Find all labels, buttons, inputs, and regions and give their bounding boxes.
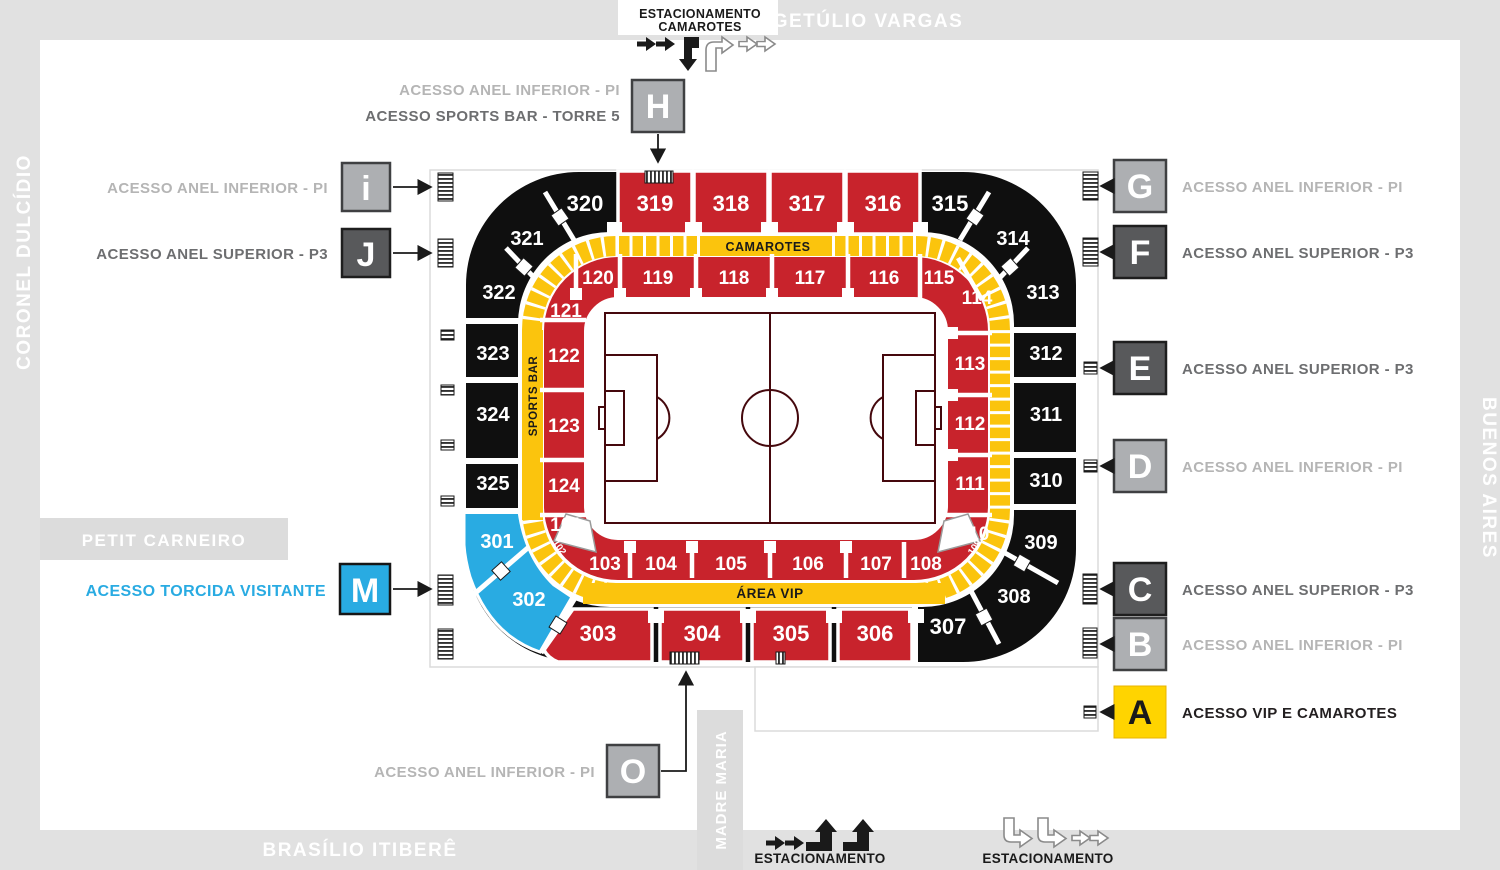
section-label-313: 313 [1026, 282, 1059, 304]
gate-icon-m [438, 575, 453, 605]
street-brasilio-itibere: BRASÍLIO ITIBERÊ [262, 839, 457, 861]
section-label-106: 106 [792, 554, 824, 575]
section-label-324: 324 [476, 404, 510, 426]
ring-label-area-vip: ÁREA VIP [736, 586, 803, 601]
section-label-325: 325 [476, 473, 509, 495]
section-label-123: 123 [548, 416, 580, 437]
access-d-label: ACESSO ANEL INFERIOR - PI [1182, 459, 1403, 476]
parking-bottom-left-label: ESTACIONAMENTO [754, 851, 885, 866]
section-label-320: 320 [567, 191, 604, 216]
access-letter-h: H [646, 88, 671, 126]
parking-bottom-right-label: ESTACIONAMENTO [982, 851, 1113, 866]
gate-icon-e [1084, 362, 1097, 374]
section-label-307: 307 [930, 614, 967, 639]
section-label-112: 112 [955, 414, 986, 435]
gate-icon-d [1084, 460, 1097, 472]
access-j-label: ACESSO ANEL SUPERIOR - P3 [96, 246, 328, 263]
section-label-108: 108 [910, 554, 942, 575]
section-label-306: 306 [857, 621, 894, 646]
gate-icon-left-4 [441, 496, 454, 506]
gate-icon-bottom-2 [776, 652, 785, 664]
street-getulio-vargas: GETÚLIO VARGAS [773, 10, 964, 32]
access-letter-i: i [361, 170, 370, 208]
access-c-label: ACESSO ANEL SUPERIOR - P3 [1182, 582, 1414, 599]
gate-icon-left-5 [438, 629, 453, 659]
section-label-317: 317 [789, 191, 826, 216]
section-label-104: 104 [645, 554, 677, 575]
section-label-305: 305 [773, 621, 810, 646]
access-g-label: ACESSO ANEL INFERIOR - PI [1182, 179, 1403, 196]
section-label-119: 119 [643, 268, 674, 289]
section-label-103: 103 [589, 554, 621, 575]
gate-icon-b [1083, 628, 1097, 658]
gate-icon-f [1083, 238, 1098, 266]
access-letter-j: J [357, 236, 376, 274]
section-label-322: 322 [482, 282, 515, 304]
section-label-318: 318 [713, 191, 750, 216]
access-letter-c: C [1128, 571, 1153, 609]
access-letter-d: D [1128, 448, 1153, 486]
gate-icon-c [1083, 574, 1097, 604]
ring-label-sports-bar: SPORTS BAR [528, 356, 540, 437]
ring-label-camarotes: CAMAROTES [725, 240, 810, 254]
section-label-107: 107 [860, 554, 892, 575]
stadium-map: GETÚLIO VARGAS CORONEL DULCÍDIO BUENOS A… [0, 0, 1500, 870]
section-label-309: 309 [1024, 532, 1057, 554]
section-label-323: 323 [476, 343, 509, 365]
access-i-label: ACESSO ANEL INFERIOR - PI [107, 180, 328, 197]
street-petit-carneiro: PETIT CARNEIRO [82, 531, 247, 550]
section-label-315: 315 [932, 191, 969, 216]
section-label-311: 311 [1030, 404, 1062, 426]
access-m-label: ACESSO TORCIDA VISITANTE [86, 583, 326, 600]
vip-forecourt [755, 667, 1098, 731]
access-o-label: ACESSO ANEL INFERIOR - PI [374, 764, 595, 781]
section-label-321: 321 [510, 228, 543, 250]
section-label-124: 124 [548, 476, 580, 497]
section-label-113: 113 [955, 354, 986, 375]
section-label-310: 310 [1029, 470, 1062, 492]
gate-icon-g [1083, 172, 1098, 200]
gate-icon-bottom-1 [670, 652, 699, 664]
section-label-105: 105 [715, 554, 747, 575]
section-label-308: 308 [997, 586, 1030, 608]
access-letter-e: E [1129, 350, 1152, 388]
access-letter-b: B [1128, 626, 1153, 664]
section-label-304: 304 [684, 621, 721, 646]
gate-icon-j [438, 239, 453, 267]
access-letter-g: G [1127, 168, 1153, 206]
gate-icon-i [438, 173, 453, 201]
section-label-314: 314 [996, 228, 1030, 250]
street-madre-maria: MADRE MARIA [713, 730, 730, 849]
section-label-114: 114 [962, 288, 993, 309]
gate-icon-left-2 [441, 385, 454, 395]
section-label-121: 121 [550, 301, 582, 322]
section-label-122: 122 [548, 346, 580, 367]
section-label-120: 120 [582, 268, 614, 289]
street-buenos-aires: BUENOS AIRES [1478, 397, 1499, 559]
section-label-301: 301 [480, 531, 513, 553]
parking-top-label-2: CAMAROTES [658, 20, 741, 34]
section-label-115: 115 [924, 268, 955, 289]
access-f-label: ACESSO ANEL SUPERIOR - P3 [1182, 245, 1414, 262]
section-label-101: 101 [550, 515, 582, 536]
section-label-117: 117 [795, 268, 826, 289]
gate-icon-left-1 [441, 330, 454, 340]
pitch [599, 313, 941, 523]
section-label-111: 111 [955, 474, 985, 495]
access-letter-o: O [620, 753, 646, 791]
gate-icon-left-3 [441, 440, 454, 450]
access-letter-f: F [1130, 234, 1151, 272]
access-b-label: ACESSO ANEL INFERIOR - PI [1182, 637, 1403, 654]
section-label-316: 316 [865, 191, 902, 216]
stadium-map-page: GETÚLIO VARGAS CORONEL DULCÍDIO BUENOS A… [0, 0, 1500, 870]
access-h-label-2: ACESSO SPORTS BAR - TORRE 5 [365, 108, 620, 125]
gate-icon-a [1084, 706, 1096, 718]
access-h-label-1: ACESSO ANEL INFERIOR - PI [399, 82, 620, 99]
access-letter-m: M [351, 572, 379, 610]
parking-top-label-1: ESTACIONAMENTO [639, 7, 761, 21]
section-label-302: 302 [512, 589, 545, 611]
access-letter-a: A [1128, 694, 1153, 732]
access-a-label: ACESSO VIP E CAMAROTES [1182, 705, 1397, 722]
section-label-312: 312 [1029, 343, 1062, 365]
street-coronel-dulcidio: CORONEL DULCÍDIO [13, 154, 35, 370]
section-label-118: 118 [719, 268, 750, 289]
access-e-label: ACESSO ANEL SUPERIOR - P3 [1182, 361, 1414, 378]
section-label-116: 116 [869, 268, 900, 289]
section-label-319: 319 [637, 191, 674, 216]
gate-icon-top [645, 171, 673, 183]
section-label-303: 303 [580, 621, 617, 646]
